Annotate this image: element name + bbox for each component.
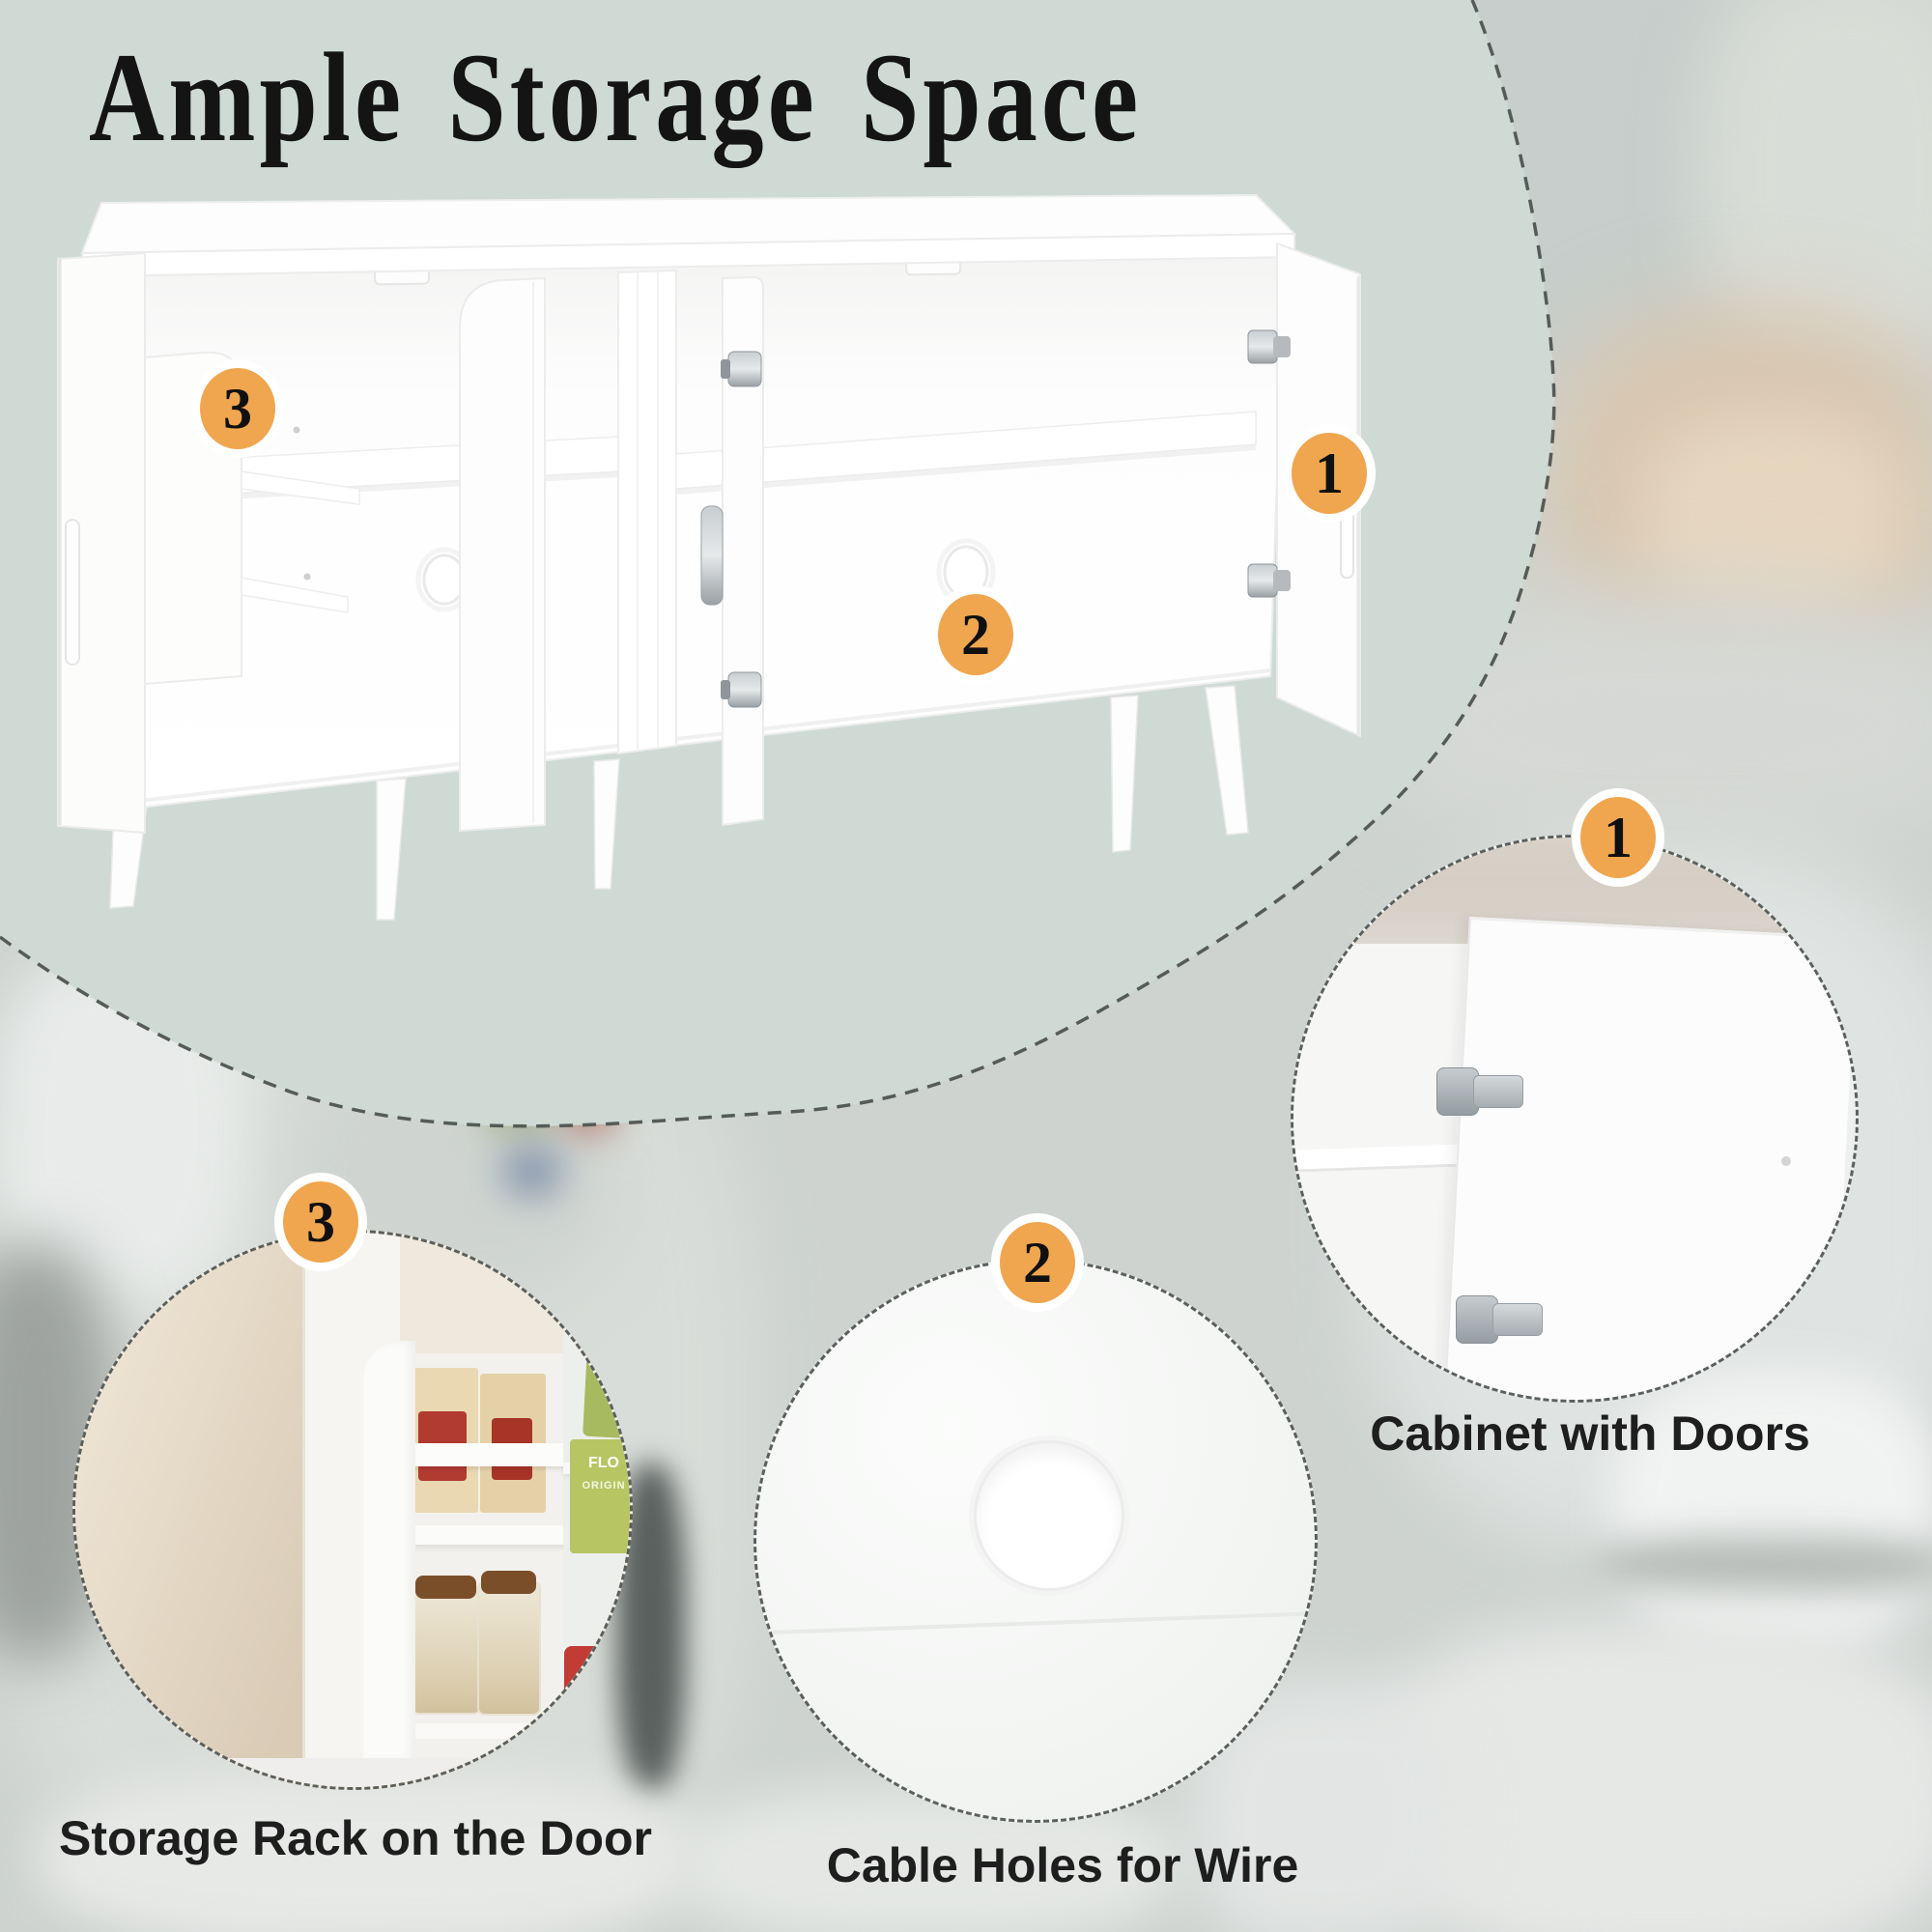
cabinet-center-divider <box>618 270 676 753</box>
badge-number: 1 <box>1315 444 1344 502</box>
snack-box-label: FLO <box>570 1455 633 1472</box>
left-door-handle <box>66 520 79 665</box>
hinge-arm <box>1473 1075 1523 1108</box>
rack-rail-bar <box>396 1443 576 1466</box>
badge-number: 1 <box>1604 809 1633 867</box>
snack-box-label: ORIGIN <box>570 1480 633 1492</box>
jar-lid <box>415 1576 476 1599</box>
glass-jar <box>412 1585 481 1715</box>
feature-caption-cable-holes: Cable Holes for Wire <box>827 1837 1299 1893</box>
center-left-door-open <box>460 278 545 831</box>
soda-can-label: Dr <box>564 1663 620 1681</box>
soda-can: Dr pper <box>564 1646 620 1752</box>
badge-number: 2 <box>961 606 990 664</box>
snack-bag <box>582 1328 633 1439</box>
feature-circle-cabinet-doors <box>1291 835 1859 1403</box>
callout-badge-main-2: 2 <box>938 594 1013 675</box>
panel-seam <box>753 1609 1318 1635</box>
glass-jar <box>477 1580 541 1716</box>
rack-side-wall <box>363 1341 415 1762</box>
feature-circle-cable-hole <box>753 1259 1318 1823</box>
callout-badge-feature-2: 2 <box>1000 1222 1075 1303</box>
callout-badge-feature-1: 1 <box>1580 797 1656 878</box>
badge-number: 3 <box>223 380 252 438</box>
screw-hole <box>1781 1156 1791 1166</box>
rack-shelf <box>392 1525 576 1545</box>
jar-lid <box>481 1571 536 1594</box>
callout-badge-feature-3: 3 <box>283 1181 358 1263</box>
badge-number: 2 <box>1023 1234 1052 1292</box>
feature-circle-storage-rack: FLO ORIGIN Dr pper <box>72 1230 633 1790</box>
hinge-arm <box>1492 1303 1543 1336</box>
rack-shelf <box>392 1723 576 1739</box>
chrome-door-handle <box>701 506 723 605</box>
cabinet-base <box>220 1758 633 1790</box>
hinge-detail <box>1456 1290 1552 1348</box>
badge-number: 3 <box>306 1193 335 1251</box>
hinge-detail <box>1436 1062 1533 1120</box>
soda-can-label: pper <box>564 1685 620 1699</box>
cable-hole-right <box>939 541 993 603</box>
page-title: Ample Storage Space <box>89 23 1142 171</box>
pantry-box <box>409 1368 478 1513</box>
snack-box: FLO ORIGIN <box>570 1439 633 1553</box>
callout-badge-main-1: 1 <box>1292 433 1367 514</box>
callout-badge-main-3: 3 <box>200 368 275 449</box>
cable-hole-detail <box>974 1440 1124 1591</box>
feature-caption-cabinet-doors: Cabinet with Doors <box>1370 1406 1810 1462</box>
feature-caption-storage-rack: Storage Rack on the Door <box>59 1810 652 1866</box>
detail-door-panel-beige <box>75 1233 327 1790</box>
product-infographic: Ample Storage Space 3 1 2 <box>0 0 1932 1932</box>
